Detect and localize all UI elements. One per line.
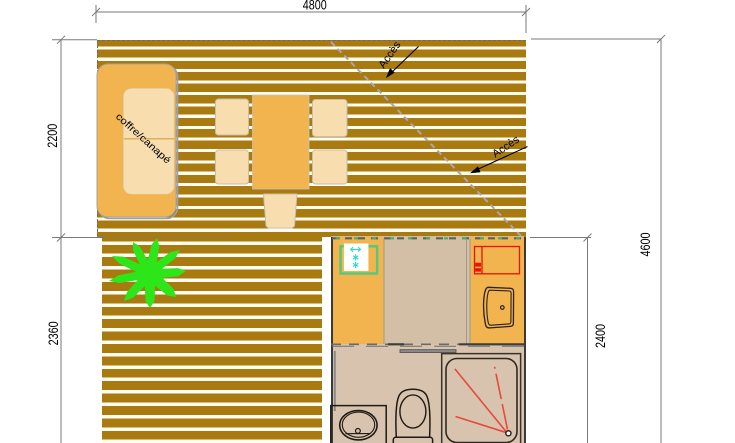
svg-text:2360: 2360 (45, 321, 61, 345)
svg-text:4800: 4800 (303, 0, 327, 13)
svg-text:4600: 4600 (637, 232, 653, 256)
svg-text:2200: 2200 (44, 124, 60, 148)
svg-text:Accès: Accès (376, 39, 403, 71)
svg-text:2400: 2400 (592, 324, 608, 348)
